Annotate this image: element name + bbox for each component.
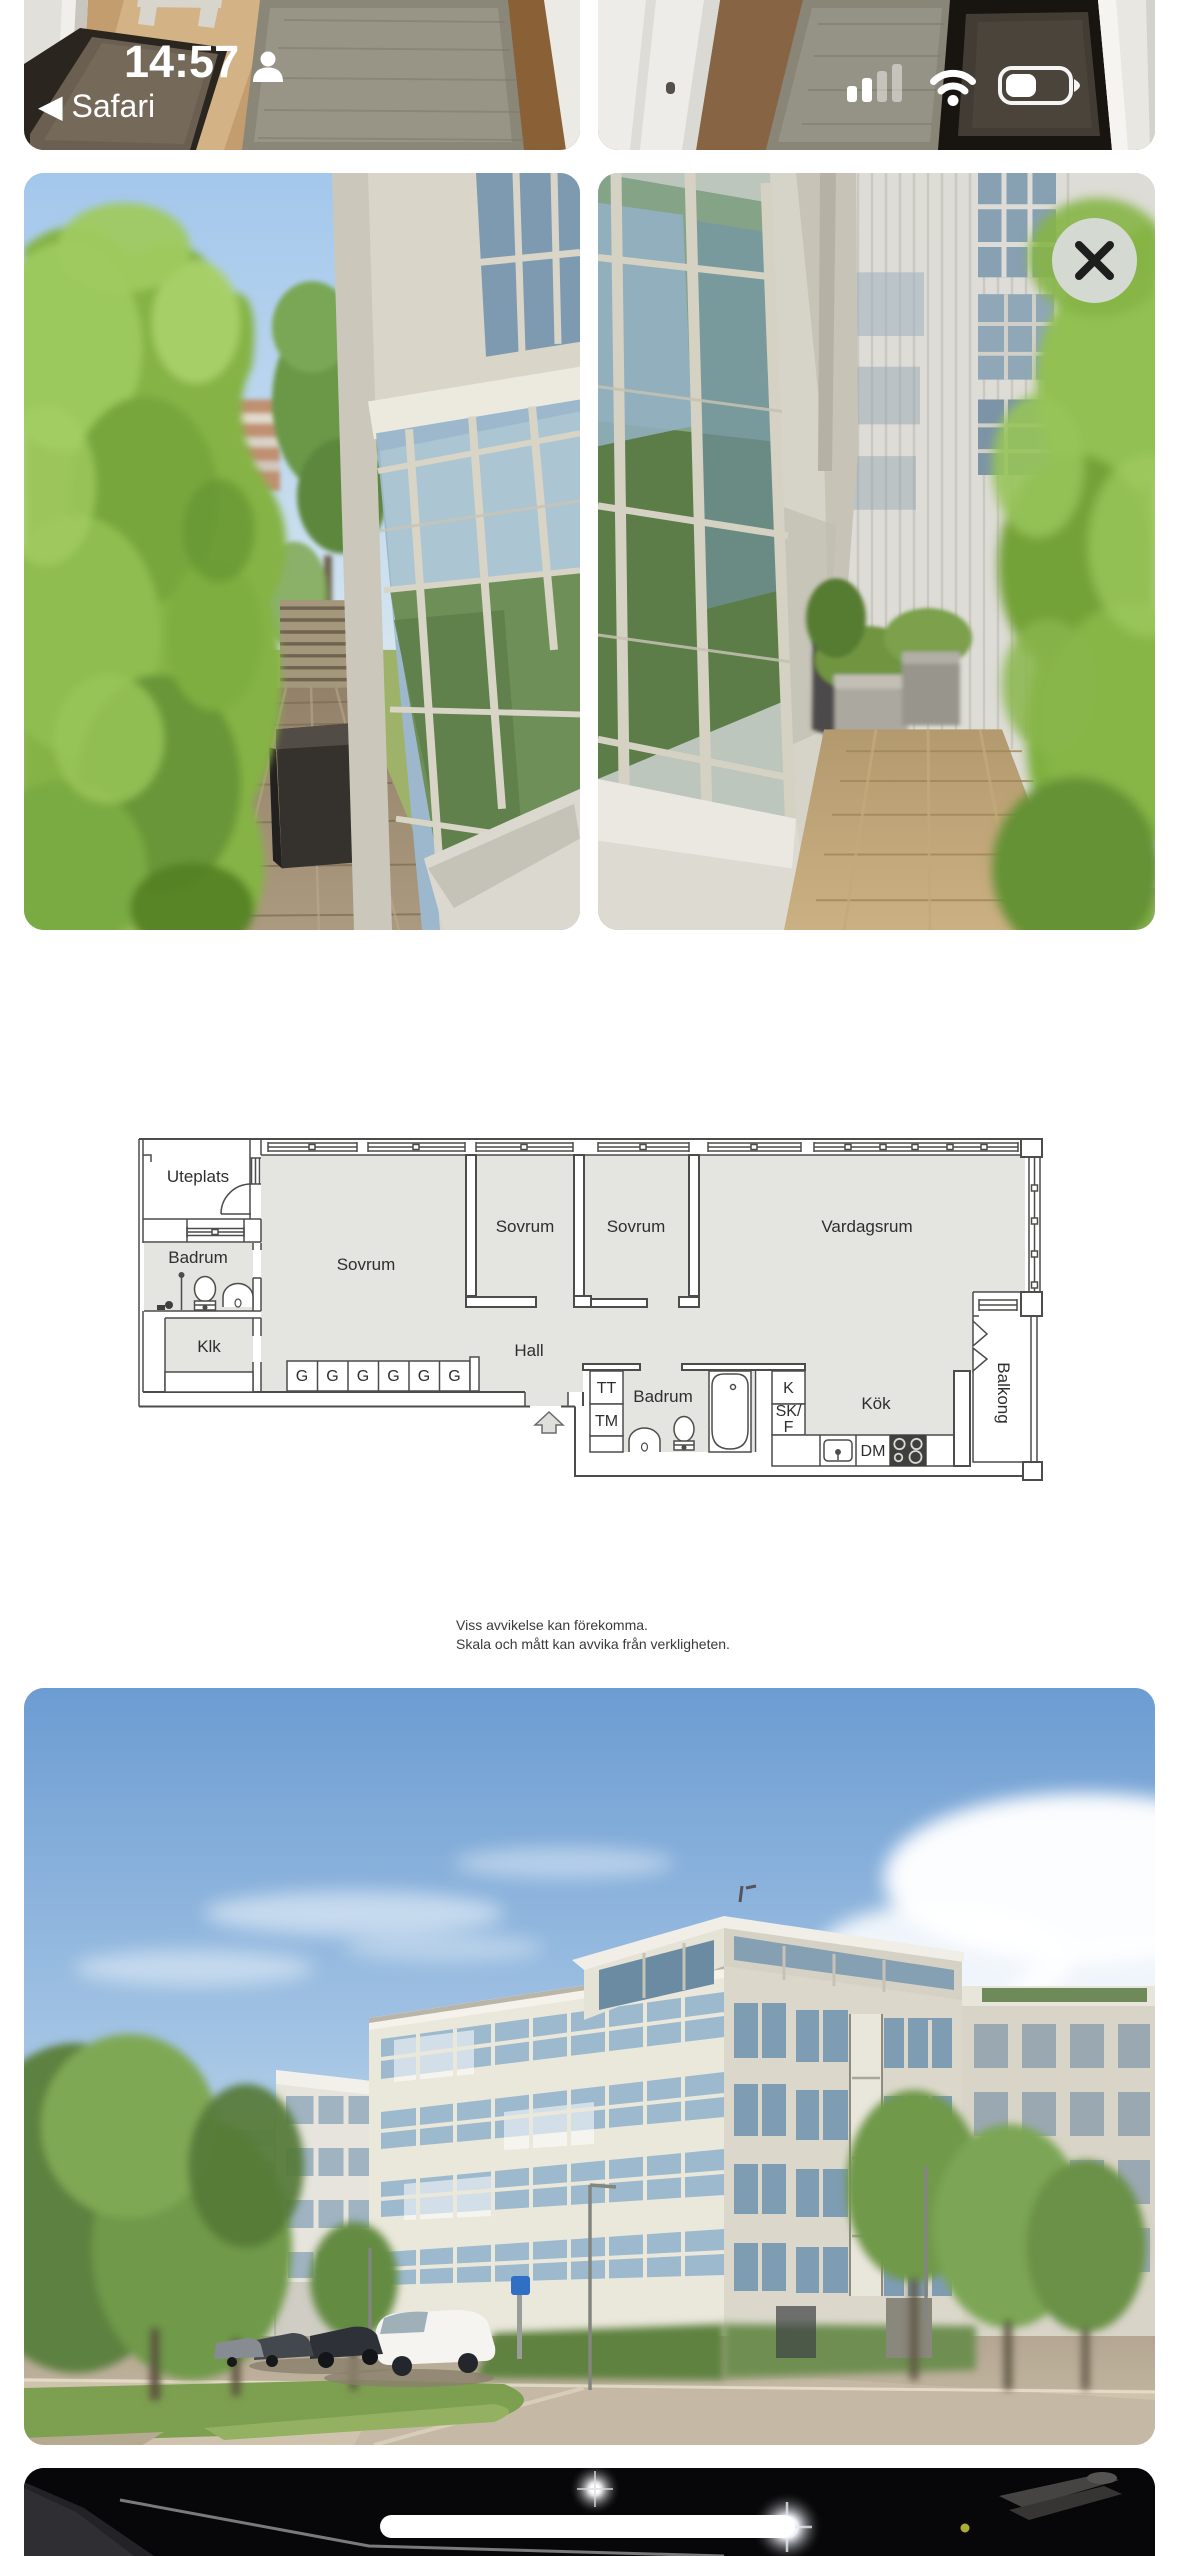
svg-text:G: G bbox=[387, 1368, 399, 1385]
svg-text:F: F bbox=[784, 1419, 794, 1436]
svg-text:Sovrum: Sovrum bbox=[607, 1217, 666, 1236]
svg-text:Hall: Hall bbox=[514, 1341, 543, 1360]
svg-text:G: G bbox=[418, 1368, 430, 1385]
svg-text:Klk: Klk bbox=[197, 1337, 221, 1356]
svg-text:Uteplats: Uteplats bbox=[167, 1167, 229, 1186]
svg-text:Badrum: Badrum bbox=[633, 1387, 693, 1406]
svg-text:Sovrum: Sovrum bbox=[496, 1217, 555, 1236]
svg-text:K: K bbox=[783, 1380, 794, 1397]
svg-text:G: G bbox=[357, 1368, 369, 1385]
svg-text:Kök: Kök bbox=[861, 1394, 891, 1413]
svg-text:G: G bbox=[296, 1368, 308, 1385]
svg-text:SK/: SK/ bbox=[776, 1403, 802, 1420]
svg-text:Vardagsrum: Vardagsrum bbox=[821, 1217, 912, 1236]
svg-text:Badrum: Badrum bbox=[168, 1248, 228, 1267]
svg-text:G: G bbox=[448, 1368, 460, 1385]
svg-text:DM: DM bbox=[861, 1443, 886, 1460]
svg-text:Sovrum: Sovrum bbox=[337, 1255, 396, 1274]
svg-text:G: G bbox=[326, 1368, 338, 1385]
svg-text:TM: TM bbox=[595, 1413, 618, 1430]
svg-text:Balkong: Balkong bbox=[994, 1362, 1013, 1423]
svg-text:TT: TT bbox=[597, 1380, 617, 1397]
